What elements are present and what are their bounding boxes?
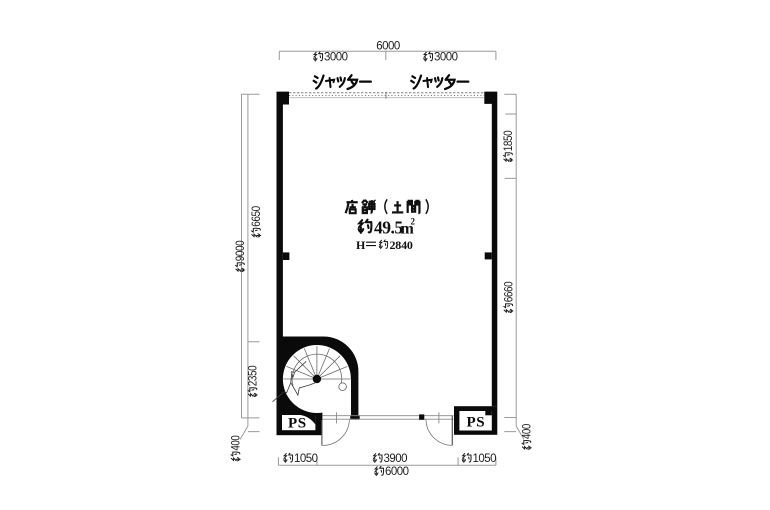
svg-text:PS: PS xyxy=(288,416,307,432)
svg-text:6660: 6660 xyxy=(503,282,515,303)
svg-text:9000: 9000 xyxy=(235,241,247,262)
svg-text:2350: 2350 xyxy=(248,366,260,387)
svg-text:H: H xyxy=(356,238,366,252)
svg-text:400: 400 xyxy=(522,424,534,439)
svg-text:2840: 2840 xyxy=(390,238,413,252)
svg-text:1050: 1050 xyxy=(294,453,318,465)
svg-text:3000: 3000 xyxy=(434,52,458,64)
svg-text:6000: 6000 xyxy=(376,40,400,52)
svg-text:6000: 6000 xyxy=(385,466,409,478)
svg-text:1850: 1850 xyxy=(503,131,515,152)
svg-text:PS: PS xyxy=(467,415,486,431)
svg-text:1050: 1050 xyxy=(473,453,497,465)
svg-text:49.5: 49.5 xyxy=(374,218,403,238)
svg-text:2: 2 xyxy=(411,217,416,227)
svg-text:6650: 6650 xyxy=(251,206,263,227)
svg-text:400: 400 xyxy=(231,436,243,451)
svg-text:3900: 3900 xyxy=(384,453,408,465)
svg-text:3000: 3000 xyxy=(324,52,348,64)
